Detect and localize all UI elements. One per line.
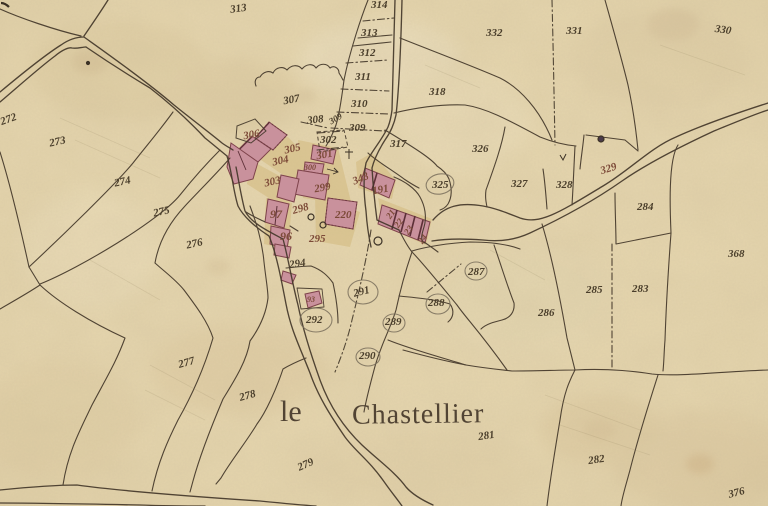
svg-text:318: 318 xyxy=(428,86,446,98)
svg-text:326: 326 xyxy=(471,143,489,155)
svg-text:287: 287 xyxy=(467,266,485,278)
svg-text:328: 328 xyxy=(555,179,573,191)
svg-text:Chastellier: Chastellier xyxy=(352,398,485,430)
svg-text:295: 295 xyxy=(308,233,326,245)
svg-text:312: 312 xyxy=(358,47,376,59)
svg-text:96: 96 xyxy=(280,229,292,243)
svg-text:310: 310 xyxy=(350,98,368,110)
svg-text:308: 308 xyxy=(306,113,325,127)
svg-text:97: 97 xyxy=(270,207,283,221)
svg-text:332: 332 xyxy=(485,27,503,39)
svg-text:294: 294 xyxy=(287,257,306,271)
svg-text:281: 281 xyxy=(476,429,495,443)
svg-text:313: 313 xyxy=(228,2,247,16)
svg-text:284: 284 xyxy=(636,201,654,213)
svg-text:313: 313 xyxy=(360,27,378,39)
svg-text:317: 317 xyxy=(389,138,407,150)
svg-text:330: 330 xyxy=(713,23,732,37)
svg-text:292: 292 xyxy=(305,314,323,326)
svg-text:290: 290 xyxy=(358,350,376,362)
svg-text:220: 220 xyxy=(334,209,352,221)
svg-text:368: 368 xyxy=(727,248,745,260)
svg-text:327: 327 xyxy=(510,178,528,190)
svg-text:le: le xyxy=(280,395,302,428)
svg-text:311: 311 xyxy=(354,71,371,83)
svg-text:283: 283 xyxy=(631,283,649,295)
svg-text:309: 309 xyxy=(348,122,366,134)
svg-text:288: 288 xyxy=(427,297,445,309)
svg-text:286: 286 xyxy=(537,307,555,319)
svg-text:289: 289 xyxy=(384,316,402,328)
svg-text:331: 331 xyxy=(565,25,583,37)
svg-text:300: 300 xyxy=(303,163,316,172)
svg-text:302: 302 xyxy=(319,134,337,146)
svg-text:282: 282 xyxy=(586,453,605,467)
svg-text:325: 325 xyxy=(431,179,449,191)
svg-text:285: 285 xyxy=(585,284,603,296)
svg-text:314: 314 xyxy=(370,0,388,11)
svg-text:93: 93 xyxy=(307,295,315,304)
